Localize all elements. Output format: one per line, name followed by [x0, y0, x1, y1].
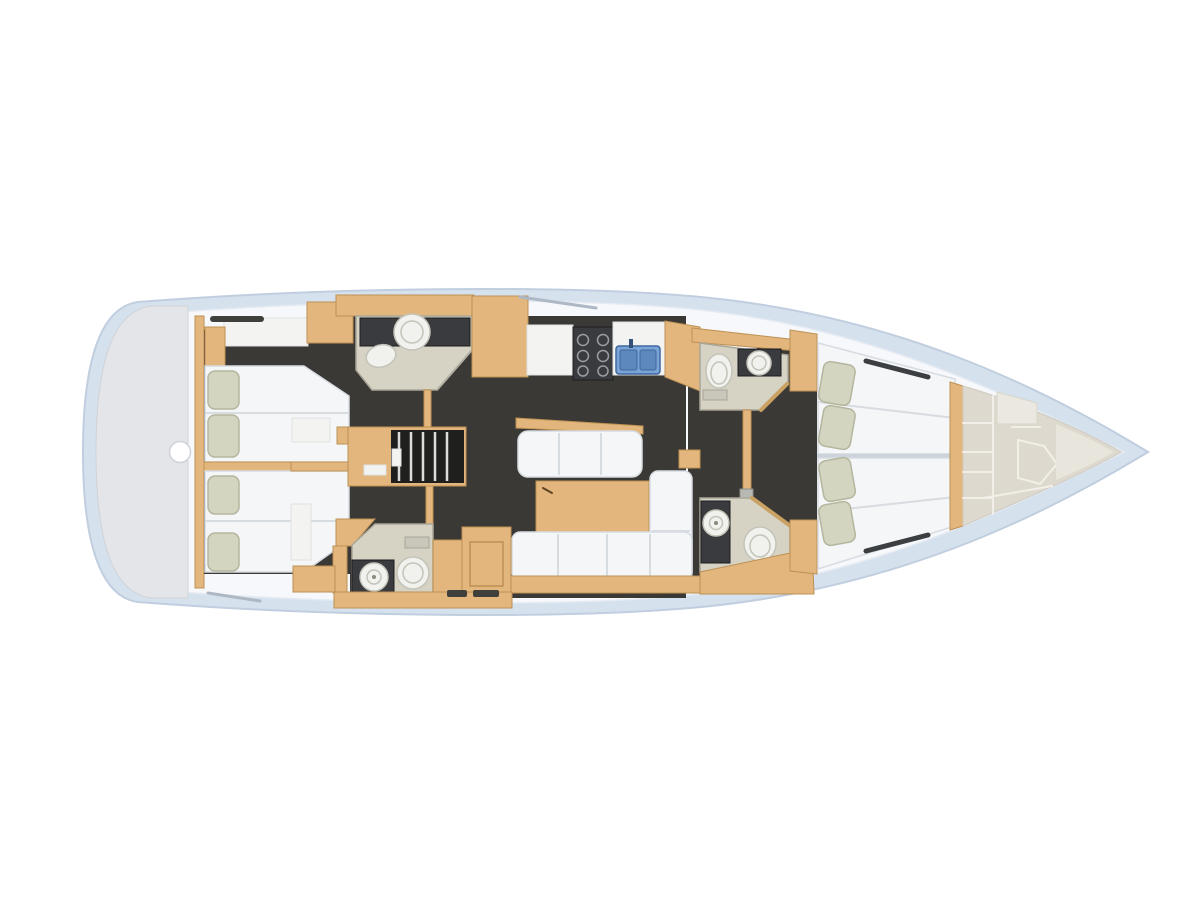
aft-deck-locker [224, 318, 308, 346]
sink-basin [640, 350, 656, 370]
drawer-slot [473, 590, 499, 597]
door-post [426, 486, 433, 526]
stern-platform [96, 306, 191, 598]
salon-bench [518, 431, 642, 477]
side-table [679, 450, 700, 468]
aft-wardrobe-port [205, 327, 225, 368]
pillow [818, 457, 857, 503]
galley-cabinet [472, 296, 528, 377]
washbasin [394, 314, 430, 350]
vent-grille [405, 537, 429, 548]
toilet [744, 527, 776, 561]
wardrobe [790, 520, 817, 574]
toilet [706, 354, 732, 388]
pillow [818, 361, 857, 407]
washbasin [747, 351, 771, 375]
door-post [337, 427, 348, 444]
frame-slot [364, 465, 386, 475]
faucet [629, 339, 633, 348]
companionway-steps [391, 430, 464, 483]
pillow [208, 476, 239, 514]
vent-grille [703, 390, 727, 400]
toilet [397, 557, 429, 589]
drawer-slot [447, 590, 467, 597]
bulkhead-panel [291, 504, 311, 560]
transom-bulkhead [195, 316, 204, 588]
deck-hatch-slot [210, 316, 264, 322]
step-landing [392, 449, 401, 466]
stove [573, 327, 613, 380]
pillow [818, 501, 857, 547]
wardrobe [790, 330, 817, 391]
mast-column [743, 410, 751, 498]
pillow [208, 533, 239, 571]
sofa-base-trim [505, 576, 705, 593]
door-post [424, 390, 431, 428]
head-side-block [293, 566, 335, 592]
shower-drain [714, 521, 718, 525]
galley-counter-left [527, 325, 573, 375]
stern-light [170, 442, 191, 463]
head-cabinet-top [336, 295, 474, 316]
pillow [818, 405, 857, 451]
pillow [208, 415, 239, 457]
cabin-door-frame [291, 462, 348, 471]
head-filler-cabinet [433, 540, 463, 595]
yacht-floorplan: Sailing yacht interior floor plan - top … [0, 0, 1200, 900]
pillow [208, 371, 239, 409]
bulkhead-panel [292, 418, 330, 442]
shower-drain [372, 575, 376, 579]
dining-table [536, 481, 649, 533]
sink-basin [620, 350, 637, 370]
collision-bulkhead [950, 382, 963, 530]
sofa-bottom-seat [512, 532, 692, 580]
yacht-floorplan-canvas: Sailing yacht interior floor plan - top … [0, 0, 1200, 900]
